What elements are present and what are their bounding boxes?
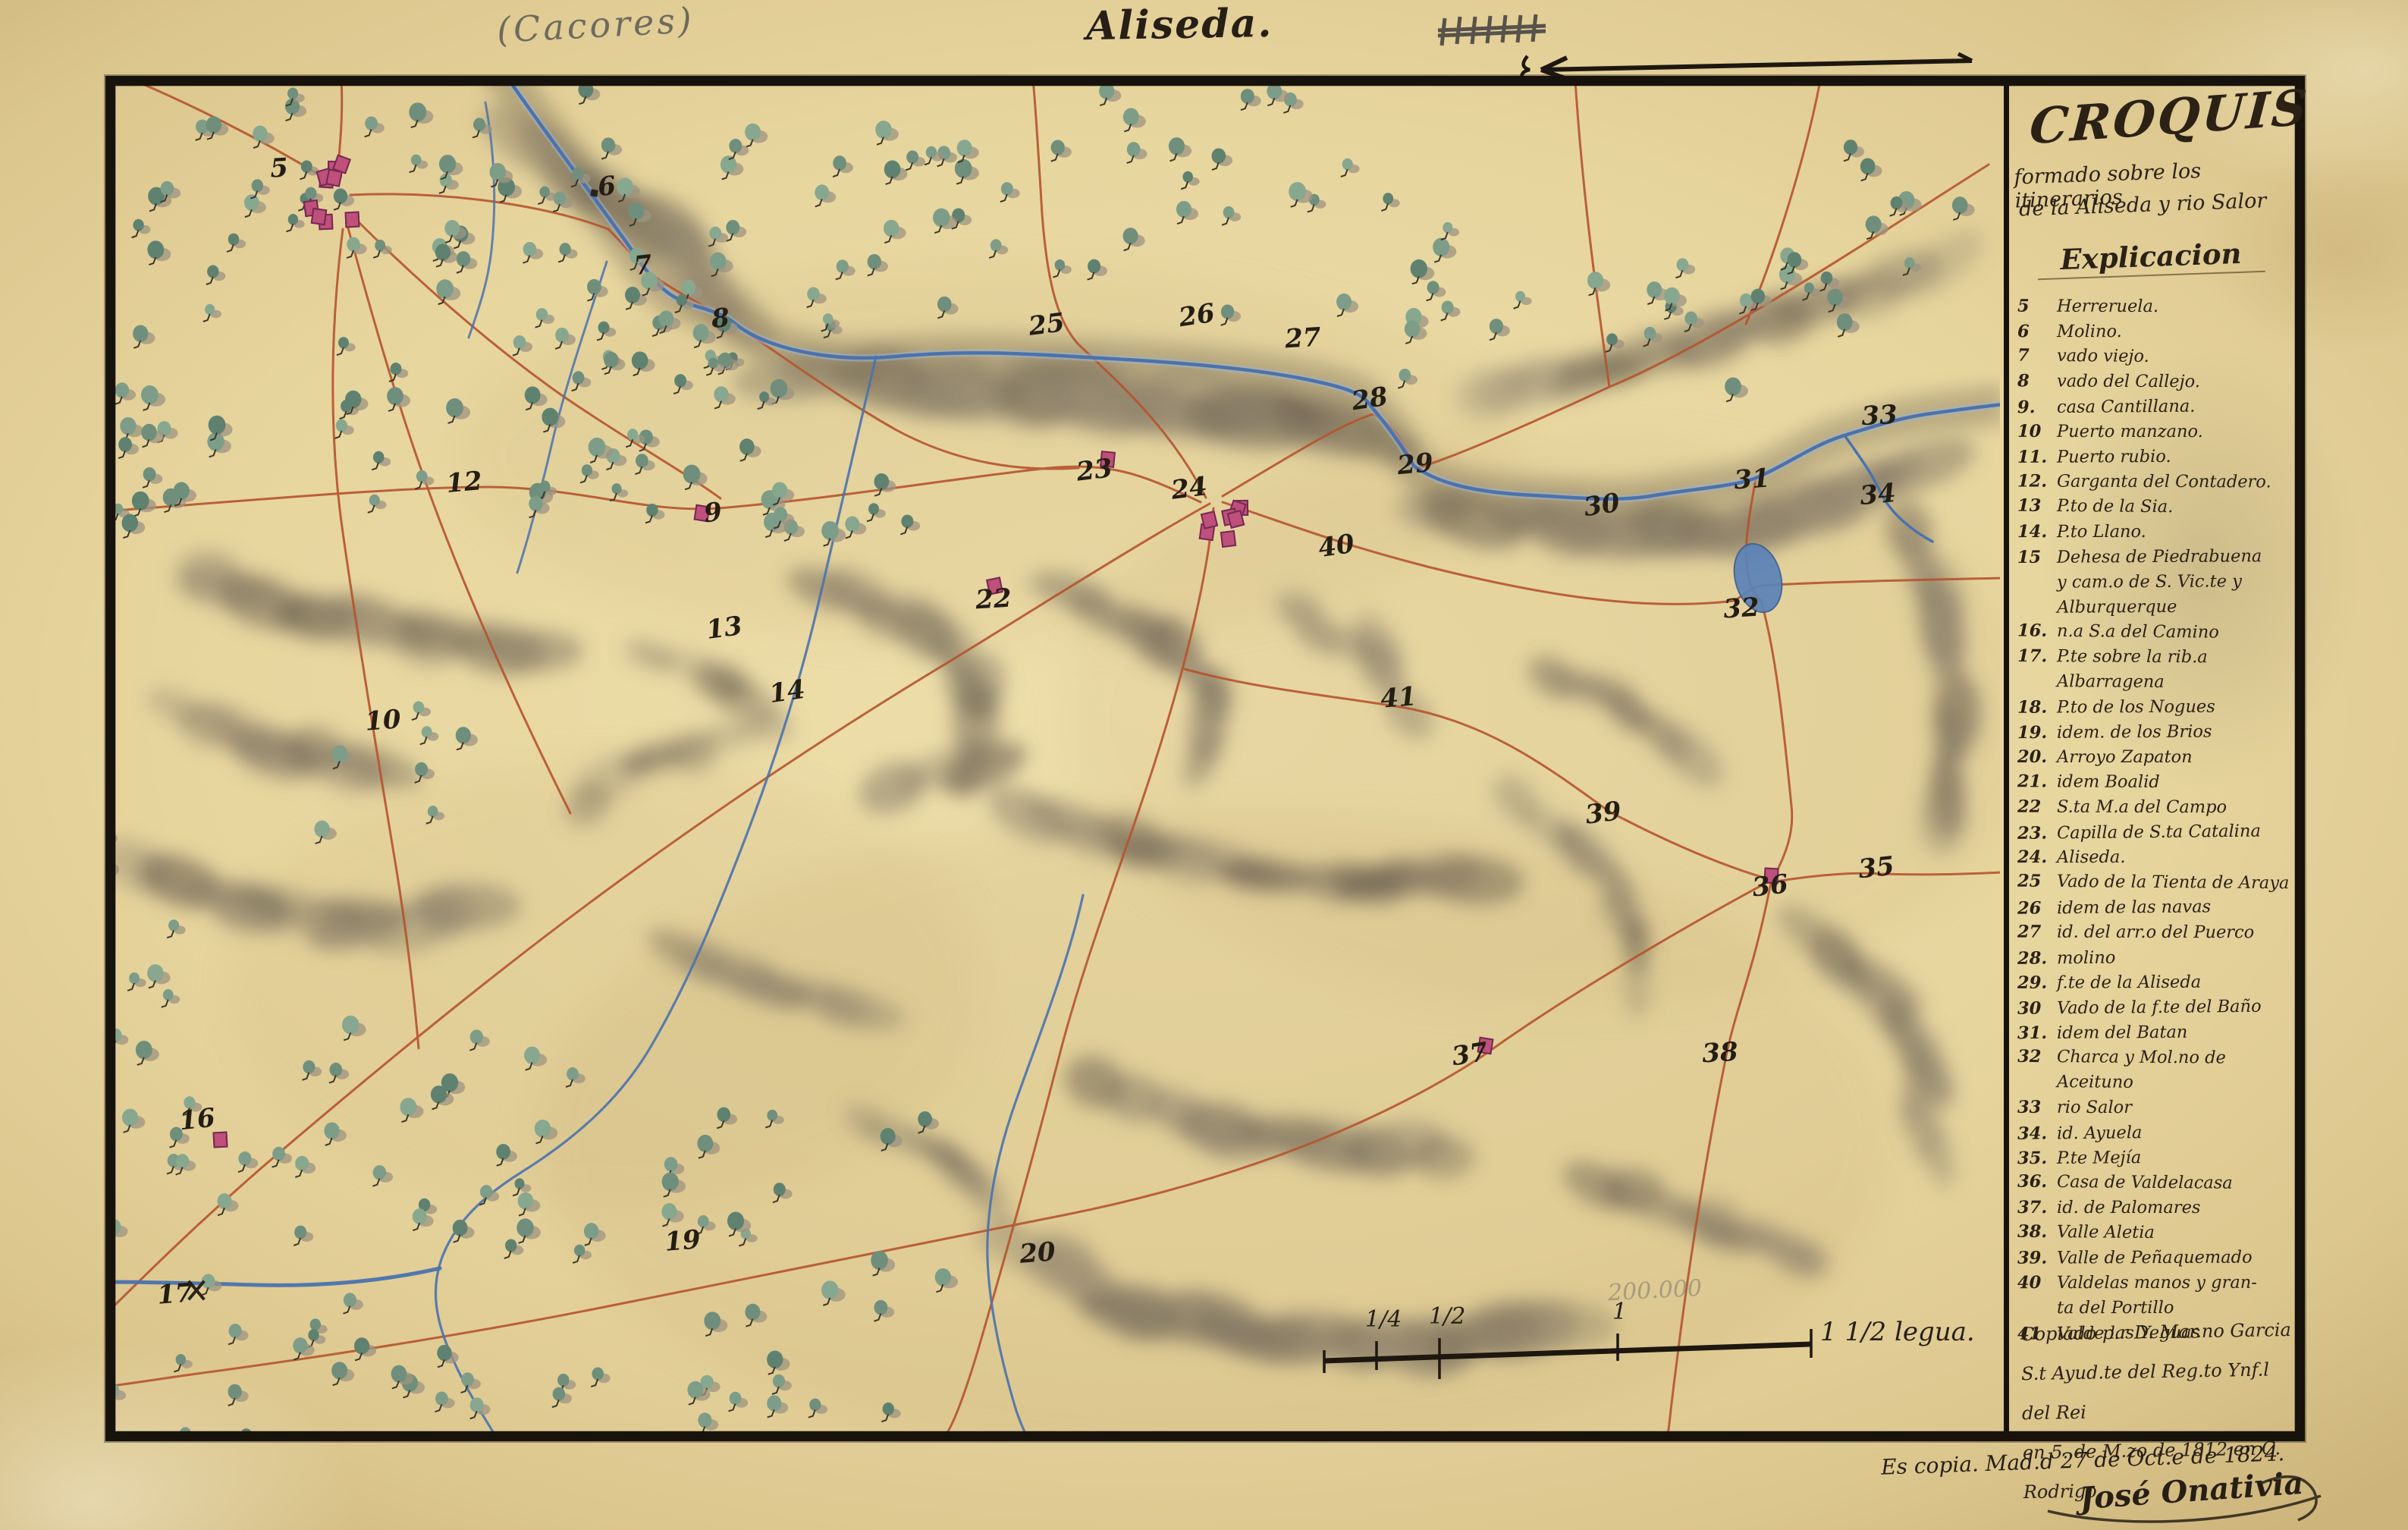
map-marker-6: 6 (596, 171, 617, 203)
map-marker-38: 38 (1701, 1037, 1739, 1070)
map-marker-30: 30 (1582, 488, 1622, 523)
map-marker-8: 8 (711, 303, 731, 335)
map-marker-26: 26 (1177, 298, 1217, 334)
map-marker-37: 37 (1450, 1037, 1490, 1072)
map-scan-page: (Cacores) Aliseda. CROQUIS formado sobre… (0, 0, 2408, 1530)
map-marker-12: 12 (445, 466, 484, 499)
map-marker-22: 22 (975, 583, 1012, 616)
map-marker-14: 14 (768, 674, 808, 709)
map-marker-36: 36 (1750, 869, 1790, 903)
map-marker-7: 7 (633, 250, 654, 281)
map-marker-27: 27 (1284, 322, 1322, 355)
map-marker-39: 39 (1584, 796, 1623, 831)
map-marker-41: 41 (1380, 681, 1417, 715)
map-marker-13: 13 (705, 611, 744, 646)
map-marker-19: 19 (664, 1224, 702, 1258)
map-marker-35: 35 (1857, 851, 1895, 885)
aliseda-village-house (1220, 530, 1236, 548)
map-marker-25: 25 (1027, 307, 1066, 342)
map-marker-10: 10 (364, 704, 402, 737)
marker-layer: 5678910121314161719202223242526272829303… (0, 0, 2408, 1530)
map-marker-20: 20 (1019, 1236, 1056, 1270)
map-marker-40: 40 (1317, 529, 1357, 564)
map-marker-32: 32 (1722, 592, 1760, 625)
map-marker-24: 24 (1169, 471, 1209, 506)
map-marker-16: 16 (177, 1103, 216, 1137)
ermita-na-sa-del-camino-symbol (212, 1131, 228, 1148)
herreruela-village-house (344, 212, 359, 228)
aliseda-village-house (1201, 511, 1218, 530)
map-marker-34: 34 (1859, 478, 1898, 511)
herreruela-village-house (325, 169, 343, 187)
map-marker-33: 33 (1860, 400, 1898, 432)
map-marker-5: 5 (269, 152, 289, 184)
herreruela-village-house (311, 207, 328, 225)
map-marker-17: 17 (156, 1277, 194, 1310)
map-marker-29: 29 (1396, 448, 1435, 481)
map-marker-9: 9 (702, 497, 724, 529)
map-marker-28: 28 (1350, 382, 1390, 417)
map-marker-31: 31 (1733, 463, 1771, 495)
map-marker-23: 23 (1075, 453, 1114, 487)
molino-mark-symbol (590, 189, 598, 196)
